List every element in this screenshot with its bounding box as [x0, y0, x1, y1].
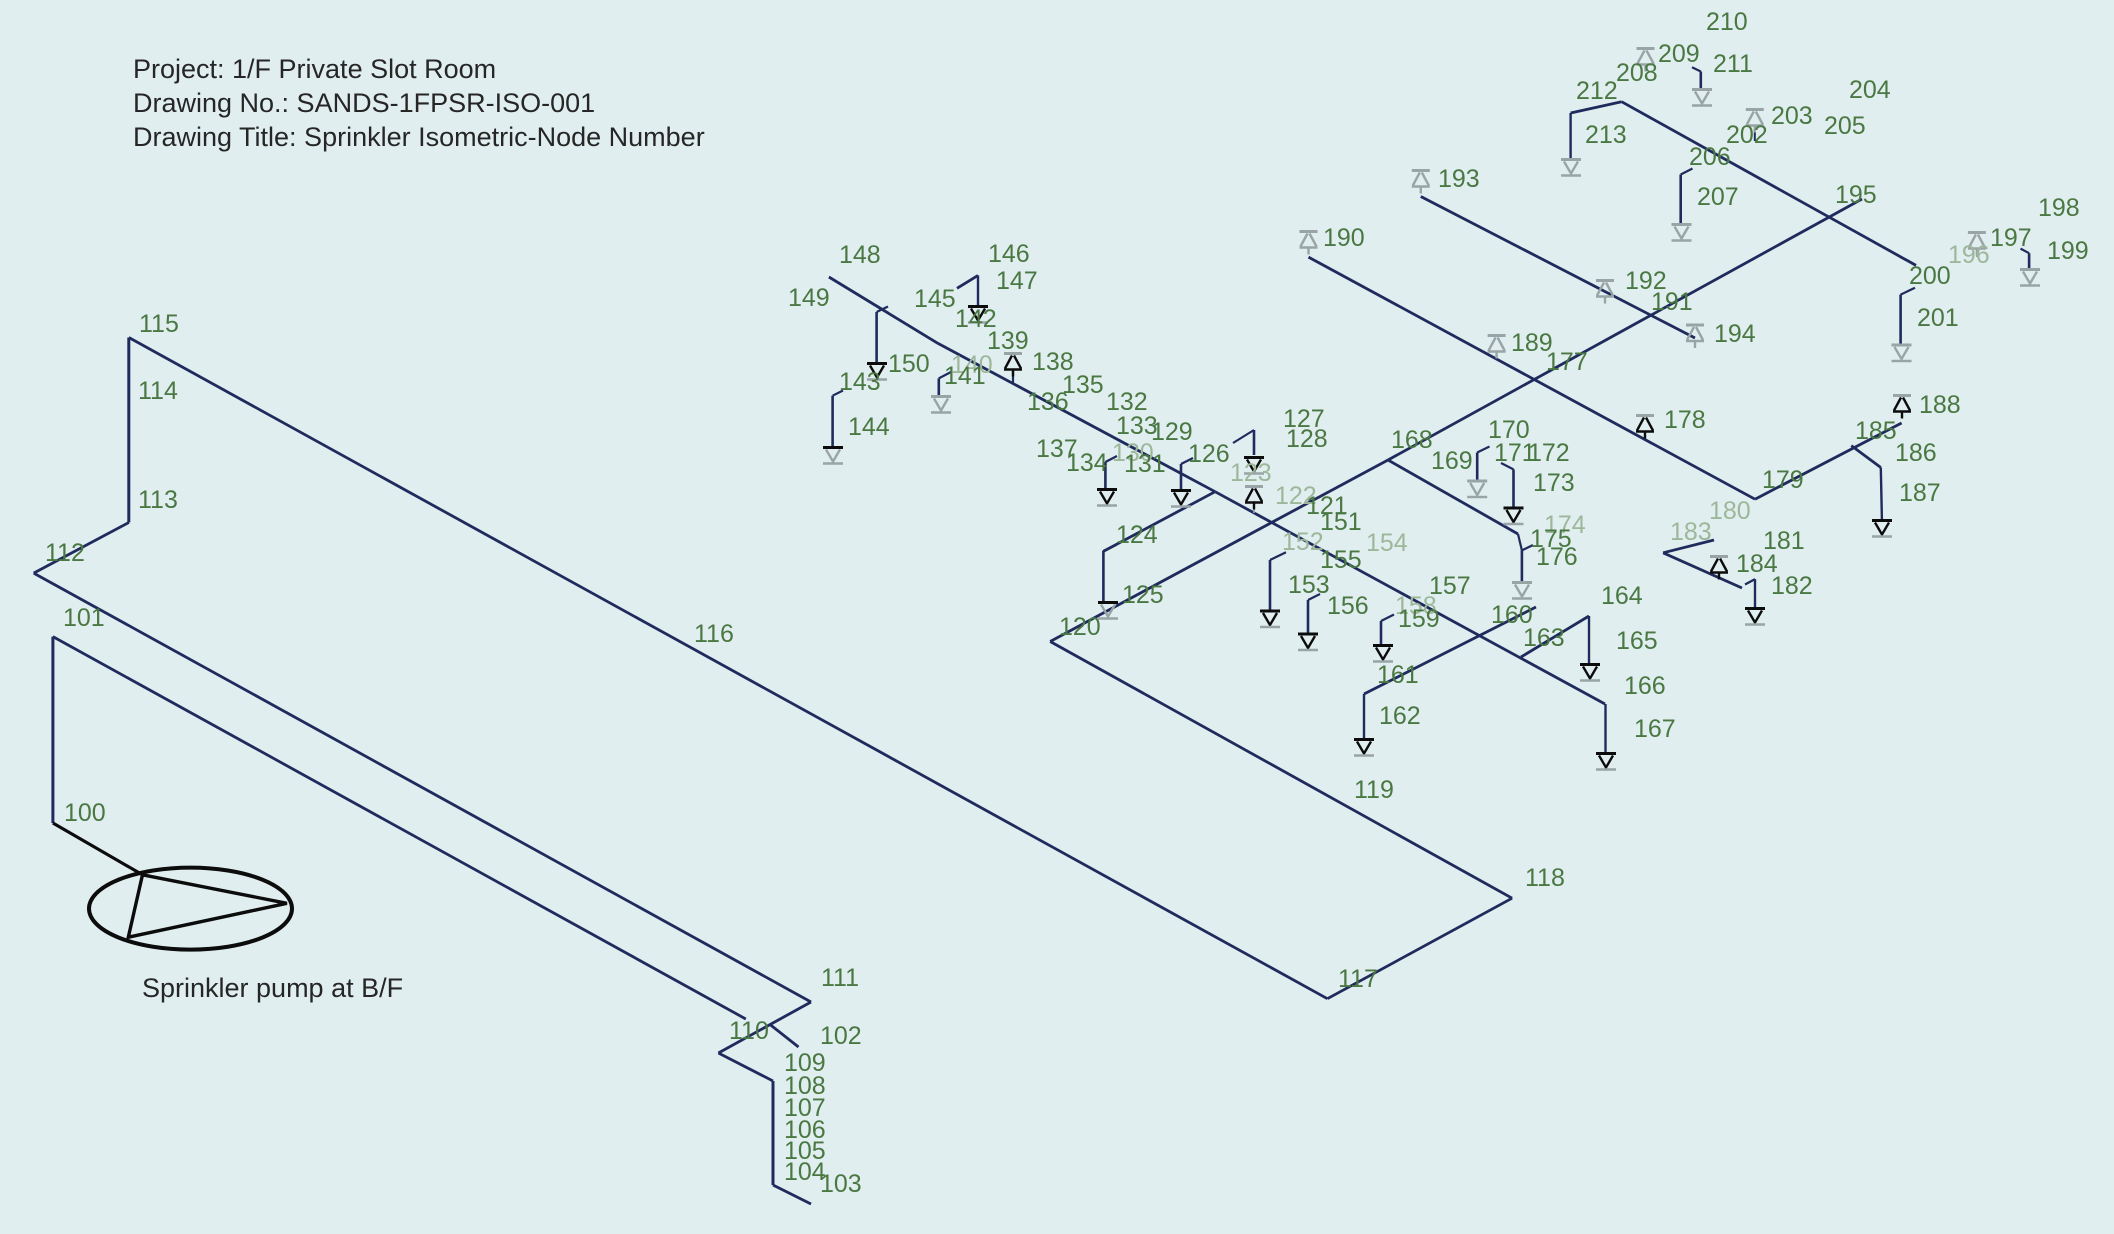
svg-text:134: 134 [1066, 449, 1108, 477]
svg-text:166: 166 [1624, 672, 1666, 700]
svg-text:120: 120 [1059, 613, 1101, 641]
svg-text:164: 164 [1601, 582, 1643, 610]
svg-text:198: 198 [2038, 194, 2080, 222]
svg-text:163: 163 [1523, 624, 1565, 652]
svg-text:154: 154 [1366, 529, 1408, 557]
svg-text:113: 113 [138, 486, 178, 514]
svg-text:143: 143 [839, 368, 881, 396]
svg-text:159: 159 [1398, 605, 1440, 633]
svg-text:145: 145 [914, 285, 956, 313]
svg-text:102: 102 [820, 1022, 862, 1050]
svg-text:208: 208 [1616, 59, 1658, 87]
svg-text:176: 176 [1536, 543, 1578, 571]
svg-text:146: 146 [988, 240, 1030, 268]
svg-text:196: 196 [1948, 241, 1990, 269]
svg-text:114: 114 [138, 377, 178, 405]
svg-text:124: 124 [1116, 521, 1158, 549]
svg-text:103: 103 [820, 1170, 862, 1198]
svg-text:115: 115 [139, 310, 179, 338]
svg-text:161: 161 [1377, 661, 1419, 689]
svg-text:187: 187 [1899, 479, 1941, 507]
svg-text:195: 195 [1835, 181, 1877, 209]
svg-text:200: 200 [1909, 262, 1951, 290]
svg-text:182: 182 [1771, 572, 1813, 600]
svg-text:155: 155 [1320, 546, 1362, 574]
svg-text:179: 179 [1762, 466, 1804, 494]
svg-text:117: 117 [1338, 965, 1378, 993]
svg-text:144: 144 [848, 413, 890, 441]
svg-text:136: 136 [1027, 388, 1069, 416]
svg-text:168: 168 [1391, 426, 1433, 454]
svg-text:118: 118 [1525, 864, 1565, 892]
svg-text:211: 211 [1713, 50, 1753, 78]
svg-text:185: 185 [1855, 417, 1897, 445]
svg-text:141: 141 [944, 362, 986, 390]
svg-text:101: 101 [63, 604, 105, 632]
svg-text:112: 112 [45, 539, 85, 567]
svg-text:128: 128 [1286, 425, 1328, 453]
svg-text:202: 202 [1726, 121, 1768, 149]
svg-text:151: 151 [1320, 508, 1362, 536]
svg-text:169: 169 [1431, 447, 1473, 475]
svg-text:173: 173 [1533, 469, 1575, 497]
svg-text:Sprinkler pump at B/F: Sprinkler pump at B/F [142, 973, 403, 1003]
svg-text:203: 203 [1771, 102, 1813, 130]
svg-text:150: 150 [888, 350, 930, 378]
svg-text:147: 147 [996, 267, 1038, 295]
svg-text:125: 125 [1122, 581, 1164, 609]
svg-text:131: 131 [1124, 450, 1166, 478]
svg-text:111: 111 [821, 964, 859, 992]
svg-text:156: 156 [1327, 592, 1369, 620]
svg-text:123: 123 [1230, 459, 1272, 487]
svg-text:178: 178 [1664, 406, 1706, 434]
svg-text:148: 148 [839, 241, 881, 269]
svg-text:100: 100 [64, 799, 106, 827]
svg-text:213: 213 [1585, 121, 1627, 149]
svg-text:126: 126 [1188, 440, 1230, 468]
svg-text:205: 205 [1824, 112, 1866, 140]
svg-text:153: 153 [1288, 571, 1330, 599]
svg-text:210: 210 [1706, 8, 1748, 36]
svg-text:201: 201 [1917, 304, 1959, 332]
svg-text:149: 149 [788, 284, 830, 312]
svg-text:183: 183 [1670, 518, 1712, 546]
svg-text:119: 119 [1354, 776, 1394, 804]
svg-text:152: 152 [1282, 528, 1324, 556]
svg-text:165: 165 [1616, 627, 1658, 655]
svg-text:188: 188 [1919, 391, 1961, 419]
svg-text:162: 162 [1379, 702, 1421, 730]
svg-text:191: 191 [1651, 288, 1693, 316]
svg-text:197: 197 [1990, 224, 2032, 252]
svg-text:212: 212 [1576, 77, 1618, 105]
svg-text:172: 172 [1528, 439, 1570, 467]
svg-text:193: 193 [1438, 165, 1480, 193]
svg-text:167: 167 [1634, 715, 1676, 743]
svg-text:207: 207 [1697, 183, 1739, 211]
svg-text:129: 129 [1151, 418, 1193, 446]
svg-text:Drawing Title: Sprinkler Isome: Drawing Title: Sprinkler Isometric-Node … [133, 122, 705, 152]
svg-text:Project: 1/F Private Slot Room: Project: 1/F Private Slot Room [133, 54, 496, 84]
svg-text:186: 186 [1895, 439, 1937, 467]
svg-text:189: 189 [1511, 329, 1553, 357]
svg-text:139: 139 [987, 327, 1029, 355]
svg-text:206: 206 [1689, 143, 1731, 171]
svg-text:199: 199 [2047, 237, 2089, 265]
svg-text:Drawing No.: SANDS-1FPSR-ISO-0: Drawing No.: SANDS-1FPSR-ISO-001 [133, 88, 595, 118]
svg-text:180: 180 [1709, 497, 1751, 525]
svg-text:116: 116 [694, 620, 734, 648]
svg-text:209: 209 [1658, 40, 1700, 68]
svg-text:194: 194 [1714, 320, 1756, 348]
svg-text:190: 190 [1323, 224, 1365, 252]
svg-text:204: 204 [1849, 76, 1891, 104]
svg-text:110: 110 [729, 1017, 769, 1045]
